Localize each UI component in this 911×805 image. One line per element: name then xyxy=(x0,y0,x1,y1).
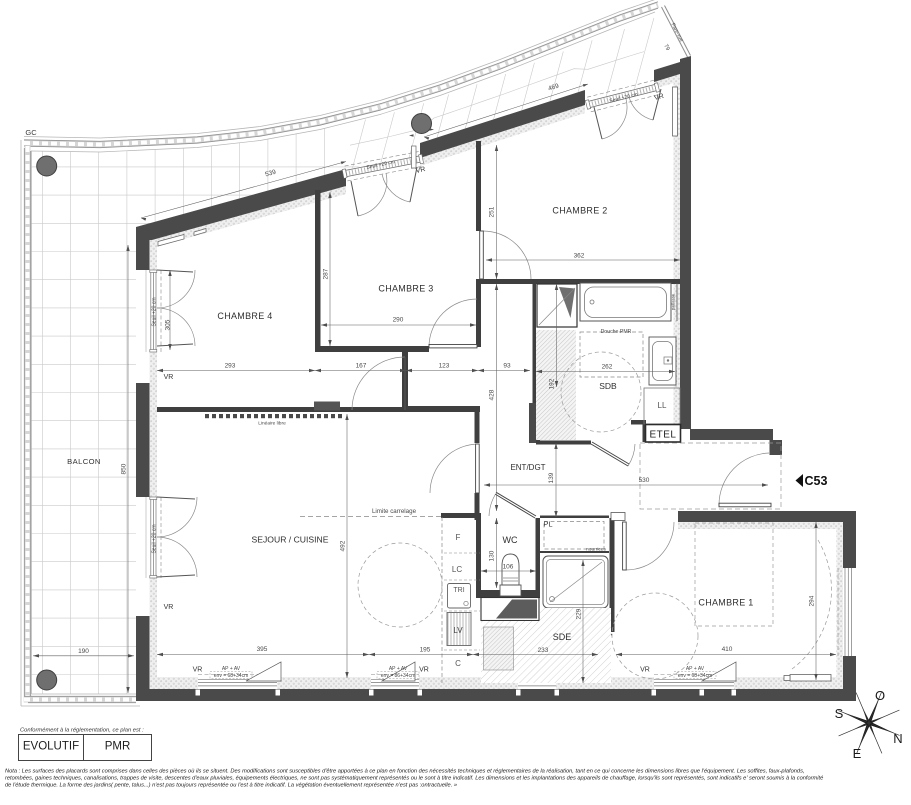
svg-text:CHAMBRE 4: CHAMBRE 4 xyxy=(217,311,272,321)
svg-text:E: E xyxy=(853,746,862,761)
svg-text:EVOLUTIF: EVOLUTIF xyxy=(23,741,79,753)
svg-text:290: 290 xyxy=(393,317,404,324)
svg-text:CHAMBRE 3: CHAMBRE 3 xyxy=(378,284,433,294)
svg-text:PL: PL xyxy=(543,520,552,529)
svg-text:233: 233 xyxy=(538,647,549,654)
svg-text:AP + AV: AP + AV xyxy=(389,666,408,672)
svg-text:139: 139 xyxy=(548,472,555,483)
svg-text:251: 251 xyxy=(489,206,496,217)
svg-text:SDB: SDB xyxy=(599,381,617,391)
svg-text:123: 123 xyxy=(439,363,450,370)
svg-text:LC: LC xyxy=(452,565,462,574)
svg-text:410: 410 xyxy=(722,646,733,653)
svg-text:Seuil +20 cm: Seuil +20 cm xyxy=(152,297,158,326)
svg-text:AP + AV: AP + AV xyxy=(686,666,705,672)
svg-text:F: F xyxy=(456,533,461,542)
svg-text:Limite carrelage: Limite carrelage xyxy=(372,508,417,515)
svg-text:130: 130 xyxy=(489,550,496,561)
svg-text:O: O xyxy=(875,688,885,703)
svg-text:AP + AV: AP + AV xyxy=(222,666,241,672)
svg-text:ETEL: ETEL xyxy=(649,430,676,441)
svg-text:GC: GC xyxy=(25,128,37,137)
svg-text:de l'étude thermique. La forme: de l'étude thermique. La forme des jardi… xyxy=(5,783,457,789)
svg-text:VR: VR xyxy=(640,667,650,674)
svg-text:LL: LL xyxy=(658,401,667,410)
svg-text:195: 195 xyxy=(420,647,431,654)
svg-text:CHAMBRE 2: CHAMBRE 2 xyxy=(552,206,607,216)
svg-text:ENT/DGT: ENT/DGT xyxy=(510,463,545,472)
svg-text:VR: VR xyxy=(193,667,203,674)
svg-text:362: 362 xyxy=(574,253,585,260)
svg-text:106: 106 xyxy=(503,564,514,571)
svg-text:SDE: SDE xyxy=(553,632,572,642)
svg-text:VR: VR xyxy=(419,667,429,674)
svg-text:Seuil +20 cm: Seuil +20 cm xyxy=(152,524,158,553)
svg-text:N: N xyxy=(893,731,902,746)
svg-text:192: 192 xyxy=(549,378,556,389)
svg-text:env = 68+34cm: env = 68+34cm xyxy=(214,673,248,679)
svg-text:nourrices: nourrices xyxy=(586,547,606,553)
svg-text:VR: VR xyxy=(164,374,174,381)
svg-text:WC: WC xyxy=(503,535,518,545)
svg-text:LV: LV xyxy=(453,626,463,635)
svg-text:Conformément à la réglementati: Conformément à la réglementation, ce pla… xyxy=(20,728,144,734)
svg-text:262: 262 xyxy=(602,364,613,371)
svg-text:293: 293 xyxy=(225,363,236,370)
svg-text:530: 530 xyxy=(639,477,650,484)
svg-text:BALCON: BALCON xyxy=(67,457,101,466)
svg-text:paillasse: paillasse xyxy=(671,293,676,310)
svg-text:93: 93 xyxy=(503,363,511,370)
svg-text:SEJOUR / CUISINE: SEJOUR / CUISINE xyxy=(252,535,329,545)
svg-text:287: 287 xyxy=(323,268,330,279)
svg-text:Douche PMR: Douche PMR xyxy=(601,329,632,335)
svg-text:229: 229 xyxy=(576,608,583,619)
svg-text:305: 305 xyxy=(165,319,172,330)
svg-text:167: 167 xyxy=(356,363,367,370)
svg-text:TRI: TRI xyxy=(453,587,464,594)
svg-text:Nota : Les surfaces des placar: Nota : Les surfaces des placards sont co… xyxy=(5,769,805,775)
svg-text:S: S xyxy=(835,706,844,721)
svg-text:Linéaire libre: Linéaire libre xyxy=(258,421,286,427)
svg-text:428: 428 xyxy=(489,389,496,400)
svg-text:395: 395 xyxy=(257,646,268,653)
svg-text:retombées, gaines techniques,: retombées, gaines techniques, canalisati… xyxy=(5,776,823,782)
svg-text:VR: VR xyxy=(164,604,174,611)
svg-text:PMR: PMR xyxy=(105,741,131,753)
svg-text:850: 850 xyxy=(121,463,128,474)
svg-text:190: 190 xyxy=(78,648,89,655)
svg-text:CHAMBRE 1: CHAMBRE 1 xyxy=(698,598,753,608)
svg-text:294: 294 xyxy=(809,595,816,606)
svg-text:C53: C53 xyxy=(805,474,828,488)
svg-text:env = 86+34cm: env = 86+34cm xyxy=(381,673,415,679)
svg-text:C: C xyxy=(455,659,461,668)
svg-text:env = 68+34cm: env = 68+34cm xyxy=(678,673,712,679)
svg-text:492: 492 xyxy=(340,540,347,551)
